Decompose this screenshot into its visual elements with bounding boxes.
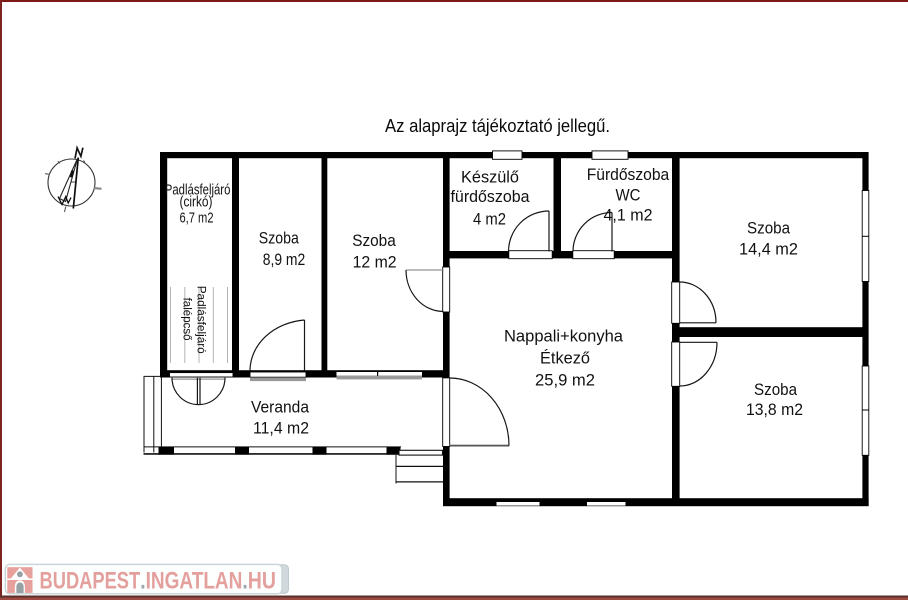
svg-text:Padlásfeljáró: Padlásfeljáró [195,286,209,354]
svg-text:12 m2: 12 m2 [353,252,397,271]
svg-text:(cirkó): (cirkó) [180,194,213,211]
svg-text:Szoba: Szoba [747,219,790,238]
svg-text:Szoba: Szoba [754,380,797,399]
svg-text:Szoba: Szoba [352,231,396,250]
svg-text:Fürdőszoba: Fürdőszoba [587,165,670,184]
svg-text:Veranda: Veranda [251,398,309,417]
svg-text:25,9 m2: 25,9 m2 [535,371,595,390]
svg-text:13,8 m2: 13,8 m2 [746,400,803,419]
svg-text:11,4 m2: 11,4 m2 [253,419,309,438]
svg-text:Étkező: Étkező [540,349,590,368]
svg-text:BUDAPEST: BUDAPEST [40,567,141,594]
svg-text:4 m2: 4 m2 [473,210,506,229]
svg-text:6,7 m2: 6,7 m2 [180,210,214,227]
svg-text:fürdőszoba: fürdőszoba [451,187,530,206]
svg-text:Készülő: Készülő [461,168,519,187]
svg-text:8,9 m2: 8,9 m2 [263,250,306,269]
svg-text:INGATLAN: INGATLAN [146,567,243,594]
svg-text:Az alaprajz tájékoztató jelleg: Az alaprajz tájékoztató jellegű. [385,116,610,136]
svg-text:Nappali+konyha: Nappali+konyha [504,327,624,346]
svg-text:14,4 m2: 14,4 m2 [739,240,798,259]
svg-text:WC: WC [616,186,641,205]
svg-text:falépcső: falépcső [181,298,195,341]
svg-text:HU: HU [248,567,276,594]
svg-text:4,1 m2: 4,1 m2 [604,206,653,225]
svg-text:Szoba: Szoba [259,229,299,248]
